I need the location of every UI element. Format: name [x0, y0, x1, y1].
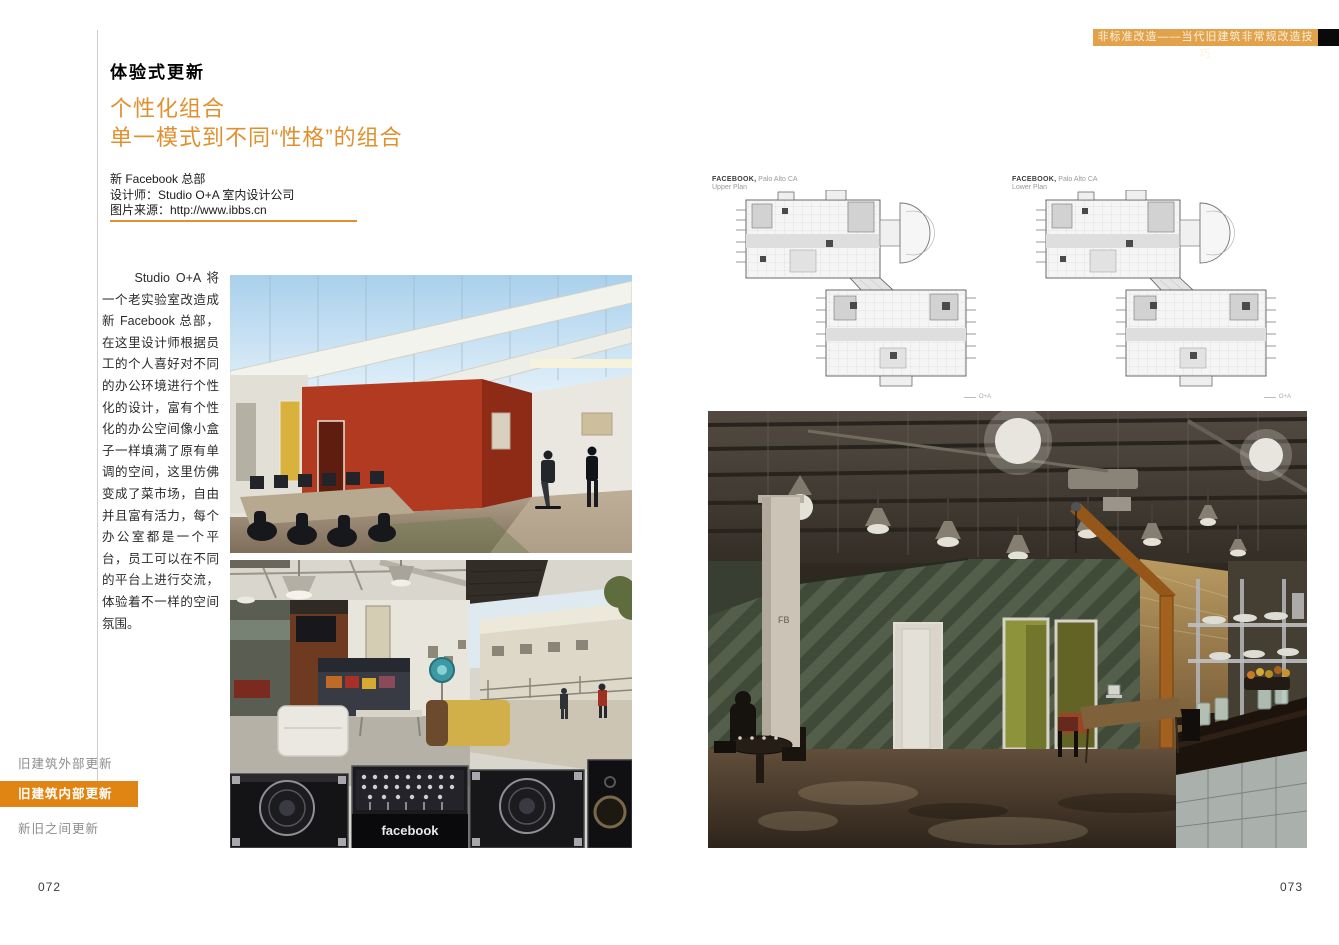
chapter-header-banner: 非标准改造——当代旧建筑非常规改造技巧	[1093, 29, 1318, 46]
credit-project: 新 Facebook 总部	[110, 172, 294, 188]
photo-lounge-dj: facebook	[230, 560, 632, 848]
left-column-rule	[97, 30, 98, 782]
photo-lounge-dj-art: facebook	[230, 560, 632, 848]
floor-plan-lower-drawing	[1030, 190, 1293, 390]
photo-cafe-interior: FB	[708, 411, 1307, 848]
plan-title-bold: FACEBOOK,	[712, 176, 756, 183]
dj-case-facebook-label: facebook	[381, 823, 439, 838]
floor-plan-upper: FACEBOOK, Palo Alto CA Upper Plan	[712, 176, 995, 402]
page-number-left: 072	[38, 880, 61, 894]
floor-plan-graphic	[730, 190, 993, 390]
floor-plan-lower-note: O+A	[1264, 394, 1291, 400]
article-heading-line2: 单一模式到不同“性格”的组合	[110, 123, 403, 152]
article-heading-line1: 个性化组合	[110, 94, 403, 123]
credit-designer: 设计师：Studio O+A 室内设计公司	[110, 188, 294, 204]
floor-plan-upper-drawing	[730, 190, 993, 390]
article-heading: 个性化组合 单一模式到不同“性格”的组合	[110, 94, 403, 152]
sidebar-item-between-renewal: 新旧之间更新	[18, 818, 99, 837]
book-spread: 非标准改造——当代旧建筑非常规改造技巧 体验式更新 个性化组合 单一模式到不同“…	[0, 0, 1339, 945]
plan-title-bold: FACEBOOK,	[1012, 176, 1056, 183]
plan-title-rest: Palo Alto CA	[758, 176, 797, 183]
floor-plan-graphic	[1030, 190, 1293, 390]
sidebar-item-interior-renewal-active: 旧建筑内部更新	[0, 781, 138, 807]
photo-office-red-box-art	[230, 275, 632, 553]
plan-note-rule	[1264, 397, 1276, 398]
floor-plan-upper-note: O+A	[964, 394, 991, 400]
sidebar-item-exterior-renewal: 旧建筑外部更新	[18, 753, 113, 772]
article-body: Studio O+A 将一个老实验室改造成新 Facebook 总部，在这里设计…	[102, 268, 219, 635]
photo-cafe-interior-art: FB	[708, 411, 1307, 848]
credit-source: 图片来源：http://www.ibbs.cn	[110, 203, 294, 219]
page-number-right: 073	[1280, 880, 1303, 894]
plan-note-text: O+A	[979, 394, 991, 400]
project-credits: 新 Facebook 总部 设计师：Studio O+A 室内设计公司 图片来源…	[110, 172, 294, 219]
photo-office-red-box	[230, 275, 632, 553]
floor-plan-lower: FACEBOOK, Palo Alto CA Lower Plan	[1012, 176, 1295, 402]
section-title: 体验式更新	[110, 58, 205, 83]
header-corner-mark	[1318, 29, 1339, 46]
plan-title-rest: Palo Alto CA	[1058, 176, 1097, 183]
plan-note-text: O+A	[1279, 394, 1291, 400]
credit-underline	[110, 220, 357, 222]
plan-note-rule	[964, 397, 976, 398]
